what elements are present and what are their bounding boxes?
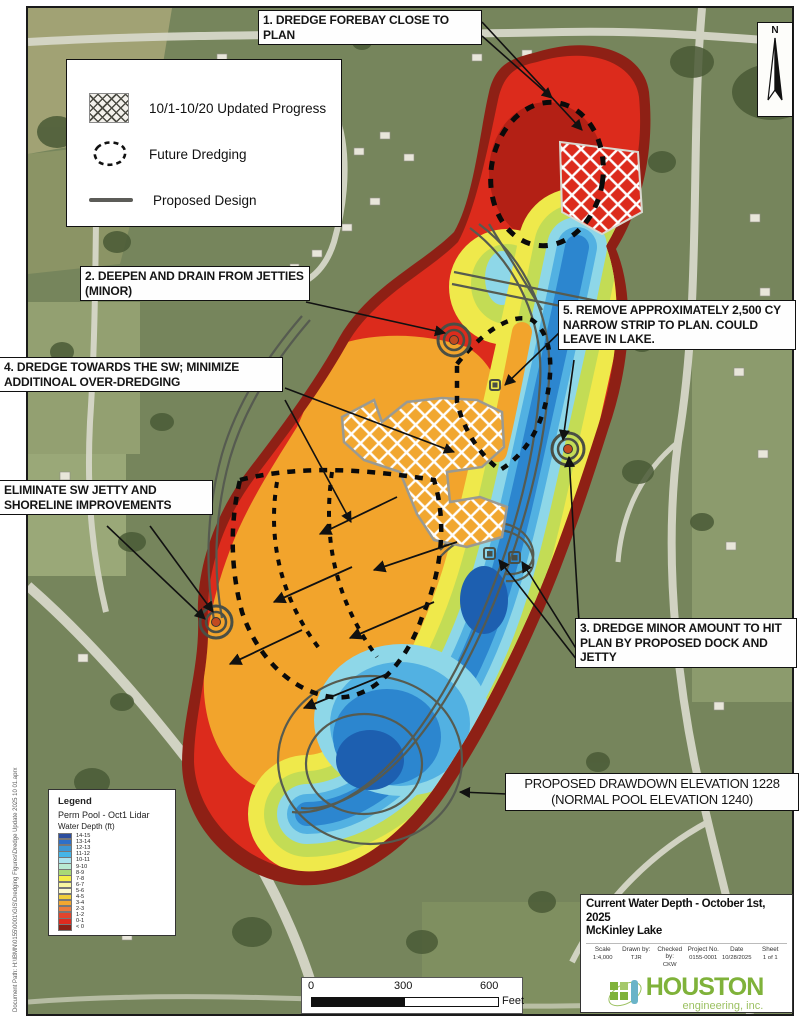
jetty-symbol (552, 433, 584, 465)
jetty-symbol (200, 606, 232, 638)
map-canvas (28, 8, 792, 1014)
jetty-symbol (438, 324, 470, 356)
document-path-text: Document Path: H:\IBMN\0155\0001\GIS\Dre… (13, 562, 19, 1012)
map-frame (26, 6, 794, 1016)
page: { "document": { "doc_path": "Document Pa… (0, 0, 800, 1024)
